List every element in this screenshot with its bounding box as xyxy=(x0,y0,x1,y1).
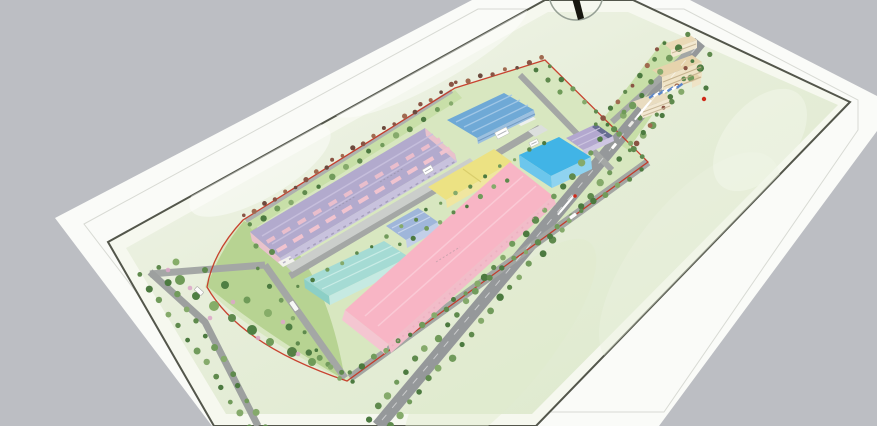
tree xyxy=(156,265,161,270)
tree xyxy=(652,57,657,62)
tree xyxy=(579,209,583,213)
tree xyxy=(639,167,643,171)
tree xyxy=(628,148,632,152)
tree xyxy=(657,69,663,75)
tree xyxy=(515,66,519,70)
tree xyxy=(361,141,366,146)
tree xyxy=(165,279,172,286)
tree xyxy=(540,250,547,257)
tree xyxy=(449,355,456,362)
tree xyxy=(547,233,553,239)
tree xyxy=(627,177,632,182)
tree xyxy=(156,297,162,303)
tree xyxy=(421,345,428,352)
red-marker xyxy=(702,97,706,101)
tree xyxy=(545,77,550,82)
tree xyxy=(503,67,507,71)
tree xyxy=(341,154,345,158)
tree xyxy=(469,332,475,338)
tree xyxy=(629,102,636,109)
tree xyxy=(267,284,272,289)
tree xyxy=(435,335,442,342)
tree xyxy=(408,333,412,337)
tree xyxy=(402,114,407,119)
tree xyxy=(380,143,384,147)
tree xyxy=(703,85,708,90)
tree xyxy=(507,285,512,290)
tree xyxy=(560,183,566,189)
tree xyxy=(184,307,190,313)
tree xyxy=(516,275,522,281)
tree xyxy=(398,243,402,247)
blossom-patch xyxy=(188,286,193,291)
tree xyxy=(350,379,354,383)
tree xyxy=(684,66,688,70)
tree xyxy=(631,146,637,152)
tree xyxy=(663,41,667,45)
tree xyxy=(421,117,426,122)
blossom-patch xyxy=(231,300,236,305)
tree xyxy=(445,322,450,327)
tree xyxy=(403,369,409,375)
tree xyxy=(303,330,307,334)
tree xyxy=(478,318,484,324)
tree xyxy=(419,322,425,328)
tree xyxy=(660,113,665,118)
tree xyxy=(296,341,300,345)
tree xyxy=(287,347,297,357)
tree xyxy=(438,220,442,224)
tree xyxy=(555,224,560,229)
tree xyxy=(394,380,399,385)
tree xyxy=(266,338,274,346)
tree xyxy=(253,409,260,416)
tree xyxy=(588,150,593,155)
tree xyxy=(393,132,399,138)
tree xyxy=(474,281,480,287)
tree xyxy=(491,265,496,270)
tree xyxy=(343,164,349,170)
tree xyxy=(185,338,190,343)
tree xyxy=(478,73,483,78)
tree xyxy=(248,222,252,226)
tree xyxy=(491,184,496,189)
tree xyxy=(616,131,622,137)
tree xyxy=(244,399,249,404)
tree xyxy=(382,126,386,130)
tree xyxy=(454,312,460,318)
tree xyxy=(666,55,673,62)
tree xyxy=(435,365,442,372)
tree xyxy=(452,210,456,214)
tree xyxy=(639,93,644,98)
tree xyxy=(306,349,312,355)
tree xyxy=(608,106,613,111)
tree xyxy=(582,100,587,105)
tree xyxy=(370,245,373,248)
tree xyxy=(146,286,153,293)
tree xyxy=(524,250,528,254)
tree xyxy=(308,358,316,366)
tree xyxy=(330,158,334,162)
tree xyxy=(645,63,650,68)
tree xyxy=(606,123,610,127)
tree xyxy=(274,206,280,212)
tree xyxy=(175,275,185,285)
tree xyxy=(166,312,172,318)
tree xyxy=(490,72,494,76)
tree xyxy=(569,173,576,180)
tree xyxy=(500,255,506,261)
tree xyxy=(252,209,257,214)
tree xyxy=(209,301,219,311)
tree xyxy=(607,170,612,175)
tree xyxy=(678,89,684,95)
tree xyxy=(548,64,552,68)
tree xyxy=(640,154,645,159)
tree xyxy=(173,259,180,266)
tree xyxy=(600,115,606,121)
tree xyxy=(337,376,342,381)
tree xyxy=(228,314,236,322)
tree xyxy=(551,194,557,200)
tree xyxy=(315,348,319,352)
tree xyxy=(260,215,266,221)
tree xyxy=(526,261,532,267)
tree xyxy=(463,291,467,295)
tree xyxy=(648,79,654,85)
tree xyxy=(291,316,295,320)
tree xyxy=(244,297,251,304)
blossom-patch xyxy=(296,352,301,357)
tree xyxy=(413,110,418,115)
tree xyxy=(513,158,516,161)
blossom-patch xyxy=(166,268,171,273)
tree xyxy=(655,113,659,117)
tree xyxy=(416,389,422,395)
tree xyxy=(375,403,382,410)
tree xyxy=(453,191,458,196)
tree xyxy=(449,82,454,87)
tree xyxy=(487,275,493,281)
tree xyxy=(348,370,352,374)
tree xyxy=(264,309,272,317)
tree xyxy=(204,359,210,365)
tree xyxy=(472,288,479,295)
tree xyxy=(527,147,532,152)
tree xyxy=(637,73,643,79)
tree xyxy=(505,178,509,182)
tree xyxy=(316,185,320,189)
tree xyxy=(273,197,277,201)
tree xyxy=(449,101,453,105)
tree xyxy=(230,371,236,377)
tree xyxy=(193,318,198,323)
tree xyxy=(535,239,541,245)
tree xyxy=(431,312,437,318)
tree xyxy=(355,251,359,255)
tree xyxy=(668,94,674,100)
tree xyxy=(509,241,515,247)
tree xyxy=(597,179,604,186)
tree xyxy=(218,385,223,390)
tree xyxy=(539,55,544,60)
tree xyxy=(228,400,233,405)
tree xyxy=(269,249,275,255)
tree xyxy=(359,363,365,369)
tree xyxy=(303,177,308,182)
tree xyxy=(221,281,229,289)
tree xyxy=(325,268,329,272)
tree xyxy=(463,298,469,304)
tree xyxy=(542,141,546,145)
tree xyxy=(424,208,428,212)
tree xyxy=(465,205,469,209)
tree xyxy=(498,164,502,168)
tree xyxy=(242,214,246,218)
tree xyxy=(622,110,627,115)
tree xyxy=(560,227,565,232)
tree xyxy=(594,122,598,126)
tree xyxy=(253,243,258,248)
tree xyxy=(317,355,323,361)
tree xyxy=(203,334,208,339)
tree xyxy=(418,102,422,106)
tree xyxy=(523,231,530,238)
tree xyxy=(641,130,646,135)
tree xyxy=(435,107,440,112)
tree xyxy=(444,307,449,312)
tree xyxy=(634,141,640,147)
tree xyxy=(707,52,712,57)
tree xyxy=(314,169,319,174)
tree xyxy=(302,190,307,195)
tree xyxy=(256,267,260,271)
tree xyxy=(286,324,293,331)
tree xyxy=(213,374,219,380)
tree xyxy=(496,294,503,301)
tree xyxy=(460,342,465,347)
tree xyxy=(411,236,416,241)
tree xyxy=(412,355,418,361)
tree xyxy=(454,81,458,85)
blossom-patch xyxy=(256,336,261,341)
tree xyxy=(424,226,429,231)
tree xyxy=(559,77,565,83)
tree xyxy=(594,109,598,113)
tree xyxy=(691,59,695,63)
tree xyxy=(396,412,403,419)
tree xyxy=(296,285,299,288)
tree xyxy=(685,32,690,37)
tree xyxy=(590,198,596,204)
tree xyxy=(221,356,227,362)
tree xyxy=(648,123,653,128)
tree xyxy=(366,417,372,423)
red-marker xyxy=(573,194,577,198)
tree xyxy=(357,158,362,163)
tree xyxy=(628,141,633,146)
tree xyxy=(175,323,180,328)
tree xyxy=(366,149,371,154)
tree xyxy=(468,185,472,189)
viewport-canvas[interactable] xyxy=(0,0,877,426)
tree xyxy=(439,90,443,94)
tree xyxy=(371,354,377,360)
tree xyxy=(439,202,442,205)
tree xyxy=(407,126,413,132)
blossom-patch xyxy=(281,320,286,325)
tree xyxy=(478,194,483,199)
tree xyxy=(174,291,180,297)
tree xyxy=(414,218,418,222)
tree xyxy=(211,344,218,351)
tree xyxy=(392,122,396,126)
tree xyxy=(310,278,315,283)
tree xyxy=(487,308,494,315)
tree xyxy=(511,256,516,261)
tree xyxy=(294,186,298,190)
tree xyxy=(325,165,329,169)
tree xyxy=(499,265,504,270)
tree xyxy=(466,78,471,83)
tree xyxy=(384,392,391,399)
tree xyxy=(202,267,208,273)
tree xyxy=(340,261,344,265)
tree xyxy=(655,47,659,51)
tree xyxy=(236,409,243,416)
tree xyxy=(279,298,284,303)
tree xyxy=(615,183,620,188)
tree xyxy=(328,364,333,369)
tree xyxy=(429,98,433,102)
tree xyxy=(578,159,585,166)
tree xyxy=(557,89,562,94)
tree xyxy=(247,325,257,335)
tree xyxy=(483,174,487,178)
tree xyxy=(194,348,201,355)
tree xyxy=(611,126,617,132)
tree xyxy=(350,145,355,150)
tree xyxy=(371,134,375,138)
tree xyxy=(616,100,621,105)
tree xyxy=(623,90,627,94)
tree xyxy=(283,190,287,194)
tree xyxy=(339,370,344,375)
tree xyxy=(383,348,388,353)
tree xyxy=(534,68,539,73)
tree xyxy=(426,375,432,381)
tree xyxy=(329,174,335,180)
tree xyxy=(578,203,584,209)
tree xyxy=(451,297,456,302)
tree xyxy=(570,86,575,91)
tree xyxy=(407,399,412,404)
tree xyxy=(631,84,635,88)
tree xyxy=(602,192,608,198)
tree xyxy=(137,272,142,277)
blossom-patch xyxy=(208,316,213,321)
model-viewport[interactable] xyxy=(0,0,877,426)
tree xyxy=(262,201,267,206)
tree xyxy=(527,60,532,65)
tree xyxy=(384,234,389,239)
tree xyxy=(616,156,622,162)
tree xyxy=(288,200,293,205)
tree xyxy=(235,383,240,388)
